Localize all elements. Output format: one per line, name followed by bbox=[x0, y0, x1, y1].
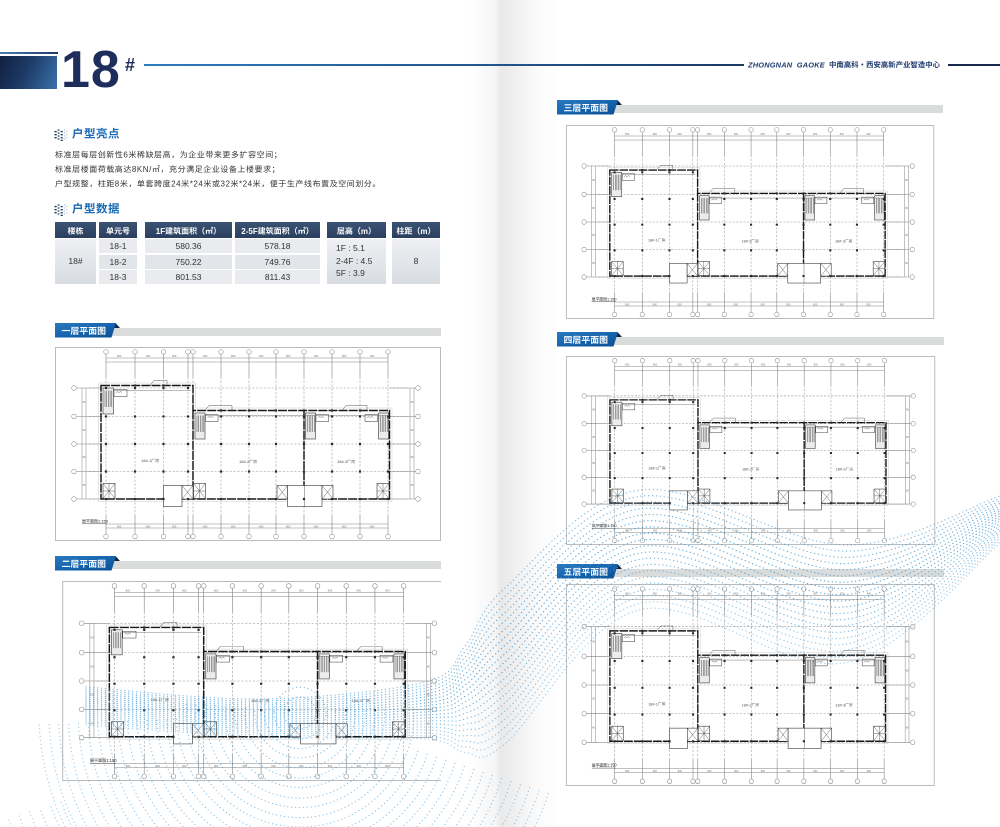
svg-text:*24: *24 bbox=[190, 180, 204, 189]
svg-text:2-5F: 2-5F bbox=[241, 227, 258, 236]
svg-text:8KN/: 8KN/ bbox=[132, 165, 152, 174]
svg-text:6: 6 bbox=[123, 151, 128, 160]
svg-text:m: m bbox=[420, 227, 427, 236]
svg-text:1F: 1F bbox=[156, 227, 165, 236]
svg-text:m: m bbox=[361, 227, 368, 236]
svg-text:ZHONGNAN GAOKE: ZHONGNAN GAOKE bbox=[748, 60, 826, 69]
svg-text:8: 8 bbox=[115, 180, 120, 189]
svg-text:*24: *24 bbox=[239, 180, 253, 189]
svg-text:24: 24 bbox=[171, 180, 181, 189]
svg-text:32: 32 bbox=[221, 180, 231, 189]
